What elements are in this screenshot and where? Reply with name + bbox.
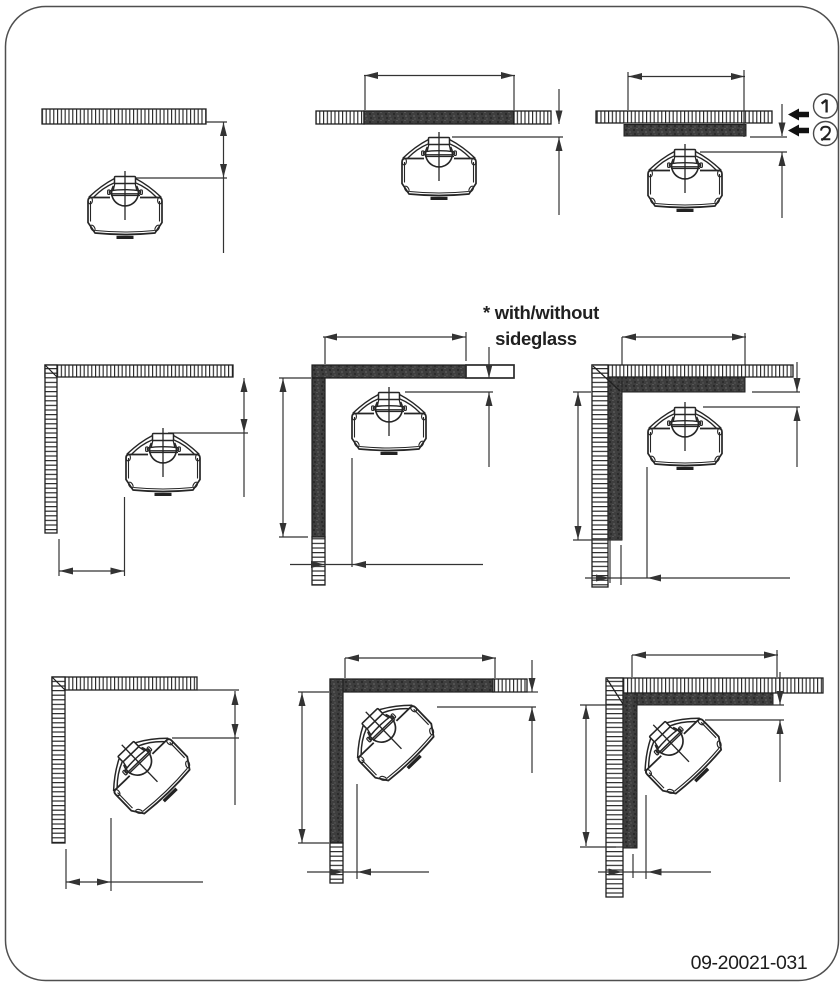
svg-text:09-20021-031: 09-20021-031 [691,952,808,974]
svg-text:sideglass: sideglass [495,328,577,349]
svg-text:* with/without: * with/without [483,302,599,323]
